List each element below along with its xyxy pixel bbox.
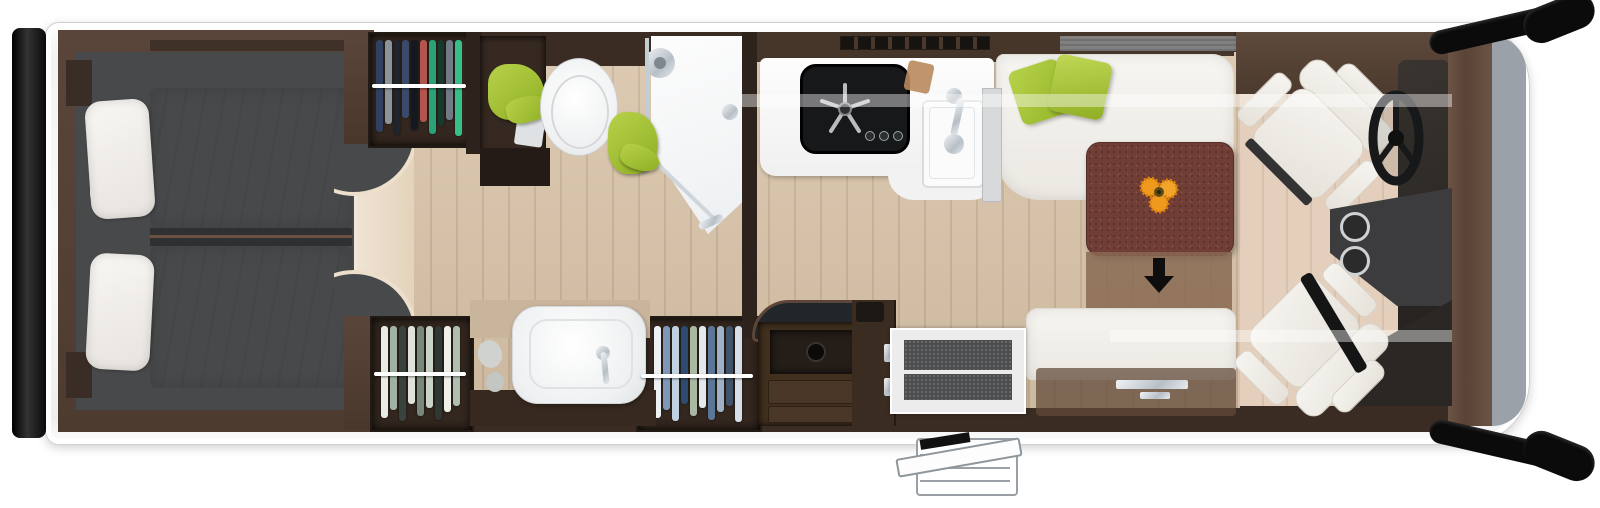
entry-cabinet-slot xyxy=(856,302,884,322)
floorplan-scene xyxy=(0,0,1600,508)
bedroom-headwall-recess xyxy=(150,40,350,51)
garment xyxy=(417,326,424,416)
wardrobe-bottom-mid-rail xyxy=(641,374,753,378)
wardrobe-top xyxy=(368,32,474,148)
side-bench-hardware xyxy=(1140,392,1170,399)
mirror-head-top xyxy=(1518,0,1600,49)
garment xyxy=(408,326,415,404)
garment xyxy=(708,326,715,420)
garment xyxy=(446,40,453,120)
hob-knob-3 xyxy=(893,131,903,141)
shower-mixer-knob xyxy=(722,104,738,120)
wall-cut-band-bottom xyxy=(1110,330,1452,342)
bedroom-shelf-recess-top xyxy=(66,60,92,106)
entry-mat-2 xyxy=(904,374,1012,400)
kitchen-tap-ring xyxy=(944,134,964,154)
single-bed-top xyxy=(150,88,352,228)
washbasin-bowl xyxy=(529,319,633,389)
step-edge-3 xyxy=(920,480,1010,482)
wardrobe-top-clothes xyxy=(376,40,462,138)
garment xyxy=(717,326,724,412)
drawer-front-2 xyxy=(768,406,862,423)
garment xyxy=(690,326,697,416)
kitchen-vent-grille xyxy=(840,36,990,50)
garment xyxy=(726,326,733,406)
kitchen-partition-wall xyxy=(742,32,757,338)
windshield-strip xyxy=(1492,36,1526,426)
garment xyxy=(455,40,462,136)
side-mirror-bottom xyxy=(1428,420,1600,476)
shower-head-center xyxy=(654,57,666,69)
bedroom-step xyxy=(334,142,414,318)
kitchen-hob xyxy=(800,64,910,154)
table-slide-arrow-head xyxy=(1144,276,1174,293)
garment xyxy=(426,326,433,408)
entry-mat-1 xyxy=(904,340,1012,370)
hob-knob-1 xyxy=(865,131,875,141)
green-cushion-2 xyxy=(1047,53,1114,121)
garment xyxy=(444,326,451,412)
table-slide-arrow-shaft xyxy=(1153,258,1165,276)
wall-cut-band-top xyxy=(740,94,1452,107)
toilet xyxy=(540,58,618,156)
flower-bouquet xyxy=(1134,172,1186,220)
dinette-window-blind xyxy=(1060,36,1236,51)
soap-dish xyxy=(486,372,504,392)
garment xyxy=(681,326,688,404)
hob-knob-2 xyxy=(879,131,889,141)
cup-holder-1 xyxy=(1340,212,1370,242)
toilet-seat-ring xyxy=(551,75,609,149)
rear-bumper-bar xyxy=(12,28,46,438)
side-mirror-top xyxy=(1428,0,1600,52)
wardrobe-bottom-left-rail xyxy=(374,372,466,376)
hob-burner-star xyxy=(815,79,875,139)
garment xyxy=(420,40,427,122)
bed-divider-trim xyxy=(150,235,352,238)
pillow-top-bed xyxy=(84,98,156,220)
mirror-head-bottom xyxy=(1518,425,1600,486)
drawer-front-1 xyxy=(768,380,862,404)
side-bench-rail xyxy=(1116,380,1188,389)
garment xyxy=(453,326,460,406)
single-bed-bottom xyxy=(150,246,352,388)
toilet-cabinet-base xyxy=(480,148,550,186)
bedroom-partition-bottom xyxy=(344,316,372,430)
front-dash-wood-band xyxy=(1448,34,1492,426)
side-bench-base xyxy=(1036,368,1236,416)
washbasin xyxy=(512,306,646,404)
wardrobe-top-rail xyxy=(372,84,466,88)
garment xyxy=(438,40,445,126)
garment xyxy=(385,40,392,124)
garment xyxy=(663,326,670,410)
garment xyxy=(402,40,409,118)
drawer-unit-hole xyxy=(806,342,826,362)
wardrobe-bottom-left xyxy=(370,316,474,432)
garment xyxy=(699,326,706,408)
pillow-bottom-bed xyxy=(85,252,155,371)
entry-door xyxy=(890,328,1026,414)
garment xyxy=(390,326,397,410)
